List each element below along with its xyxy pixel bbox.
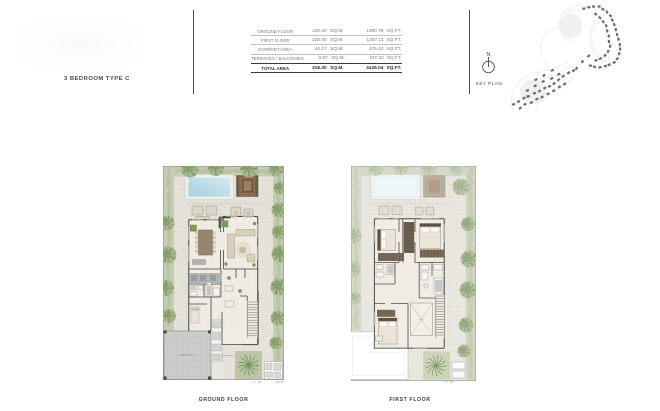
svg-text:CAR PORT: CAR PORT bbox=[180, 354, 195, 357]
svg-text:VOID: VOID bbox=[419, 320, 425, 322]
